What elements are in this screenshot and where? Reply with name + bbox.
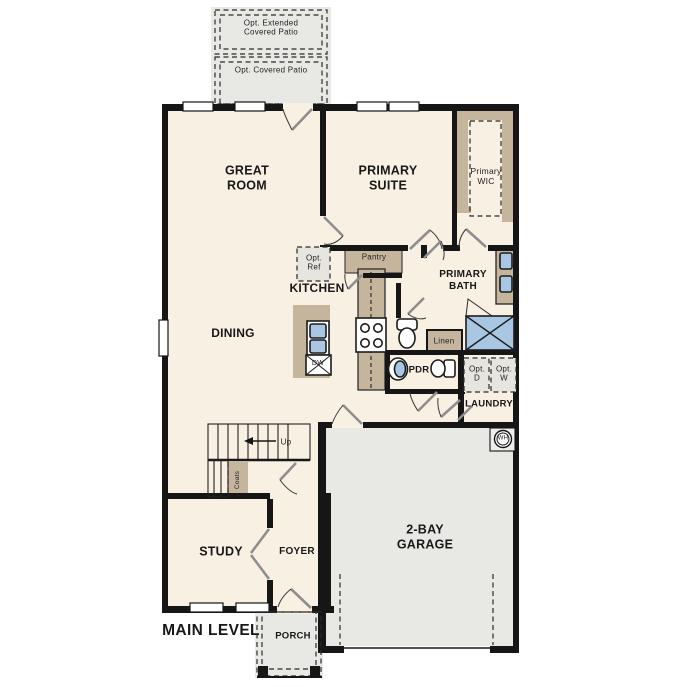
label-pantry: Pantry — [362, 252, 387, 261]
window-icon — [389, 102, 419, 111]
window-icon — [235, 102, 265, 111]
range-cooktop-icon — [356, 318, 386, 352]
label-primary-wic: Primary WIC — [470, 166, 501, 186]
label-wh: WH — [498, 435, 509, 442]
label-linen: Linen — [434, 336, 455, 345]
window-icon — [357, 102, 387, 111]
label-opt-washer: Opt. W — [496, 365, 512, 384]
window-icon — [183, 102, 213, 111]
pdr-toilet-icon — [431, 360, 455, 377]
toilet-primary-icon — [397, 319, 417, 348]
label-coats: Coats — [234, 471, 242, 489]
label-opt-extended-patio: Opt. Extended Covered Patio — [244, 19, 298, 38]
label-porch: PORCH — [275, 630, 311, 641]
label-primary-suite: PRIMARY SUITE — [359, 163, 418, 193]
label-great-room: GREAT ROOM — [225, 163, 269, 193]
window-icon — [159, 320, 168, 356]
vanity-sink-icon — [500, 253, 512, 269]
label-dining: DINING — [211, 326, 255, 340]
label-main-level: MAIN LEVEL — [162, 622, 260, 640]
label-primary-bath: PRIMARY BATH — [439, 269, 487, 293]
floor-plan: Opt. Extended Covered Patio Opt. Covered… — [0, 0, 687, 687]
island-sink-icon — [307, 321, 329, 355]
label-garage: 2-BAY GARAGE — [397, 522, 453, 552]
porch-post-icon — [258, 666, 268, 676]
label-laundry: LAUNDRY — [465, 398, 513, 409]
window-icon — [236, 603, 269, 612]
label-study: STUDY — [199, 545, 243, 560]
label-foyer: FOYER — [279, 546, 315, 558]
label-up: Up — [281, 437, 292, 446]
floor-plan-drawing — [0, 0, 687, 687]
label-opt-ref: Opt. Ref — [306, 254, 322, 273]
label-pdr: PDR — [409, 364, 430, 375]
label-kitchen: KITCHEN — [289, 281, 344, 295]
porch-post-icon — [310, 666, 320, 676]
label-opt-dryer: Opt. D — [469, 365, 485, 384]
pdr-sink-icon — [389, 358, 408, 380]
label-opt-covered-patio: Opt. Covered Patio — [235, 65, 308, 74]
bath-vanity — [496, 246, 514, 304]
label-dw: DW — [312, 360, 324, 368]
vanity-sink-icon — [500, 276, 512, 292]
window-icon — [190, 603, 223, 612]
